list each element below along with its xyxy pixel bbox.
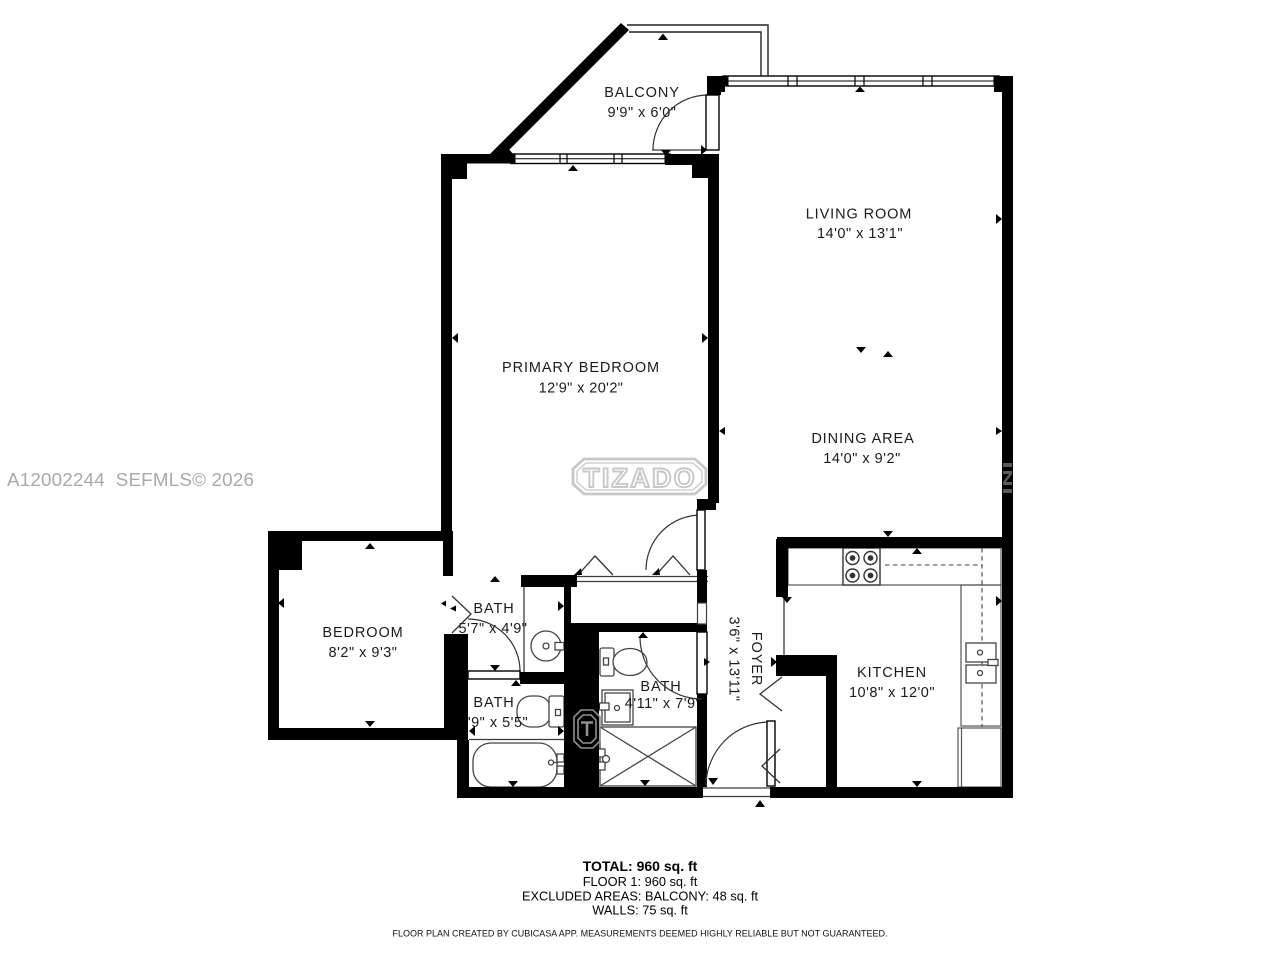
svg-text:BALCONY: BALCONY bbox=[604, 85, 680, 101]
svg-text:FLOOR PLAN CREATED BY CUBICASA: FLOOR PLAN CREATED BY CUBICASA APP. MEAS… bbox=[393, 929, 888, 939]
svg-text:LIVING ROOM: LIVING ROOM bbox=[806, 207, 913, 223]
svg-text:9'9" x 6'0": 9'9" x 6'0" bbox=[608, 105, 677, 121]
svg-text:BEDROOM: BEDROOM bbox=[322, 625, 403, 641]
svg-text:TOTAL: 960 sq. ft: TOTAL: 960 sq. ft bbox=[583, 858, 698, 874]
svg-text:FLOOR 1: 960 sq. ft: FLOOR 1: 960 sq. ft bbox=[583, 874, 698, 889]
svg-text:14'0" x 9'2": 14'0" x 9'2" bbox=[823, 451, 900, 467]
svg-text:WALLS: 75 sq. ft: WALLS: 75 sq. ft bbox=[592, 903, 688, 918]
svg-text:14'0" x 13'1": 14'0" x 13'1" bbox=[817, 226, 903, 242]
svg-text:A12002244 SEFMLS© 2026: A12002244 SEFMLS© 2026 bbox=[7, 469, 254, 490]
svg-text:TIZADO: TIZADO bbox=[583, 463, 697, 493]
svg-text:8'2" x 9'3": 8'2" x 9'3" bbox=[329, 645, 398, 661]
svg-text:BATH: BATH bbox=[473, 601, 514, 617]
svg-text:PRIMARY BEDROOM: PRIMARY BEDROOM bbox=[502, 360, 660, 376]
svg-text:12'9" x 20'2": 12'9" x 20'2" bbox=[539, 381, 624, 397]
svg-text:10'8" x 12'0": 10'8" x 12'0" bbox=[849, 685, 935, 701]
svg-text:BATH: BATH bbox=[473, 695, 514, 711]
svg-text:FOYER: FOYER bbox=[748, 632, 764, 686]
svg-text:EXCLUDED AREAS: BALCONY: 48 sq: EXCLUDED AREAS: BALCONY: 48 sq. ft bbox=[522, 889, 759, 904]
svg-text:3'6" x 13'11": 3'6" x 13'11" bbox=[726, 617, 742, 702]
svg-text:5'7" x 4'9": 5'7" x 4'9" bbox=[459, 621, 528, 637]
svg-text:'9" x 5'5": '9" x 5'5" bbox=[468, 715, 528, 731]
svg-text:KITCHEN: KITCHEN bbox=[857, 665, 927, 681]
svg-text:DINING AREA: DINING AREA bbox=[811, 431, 914, 447]
